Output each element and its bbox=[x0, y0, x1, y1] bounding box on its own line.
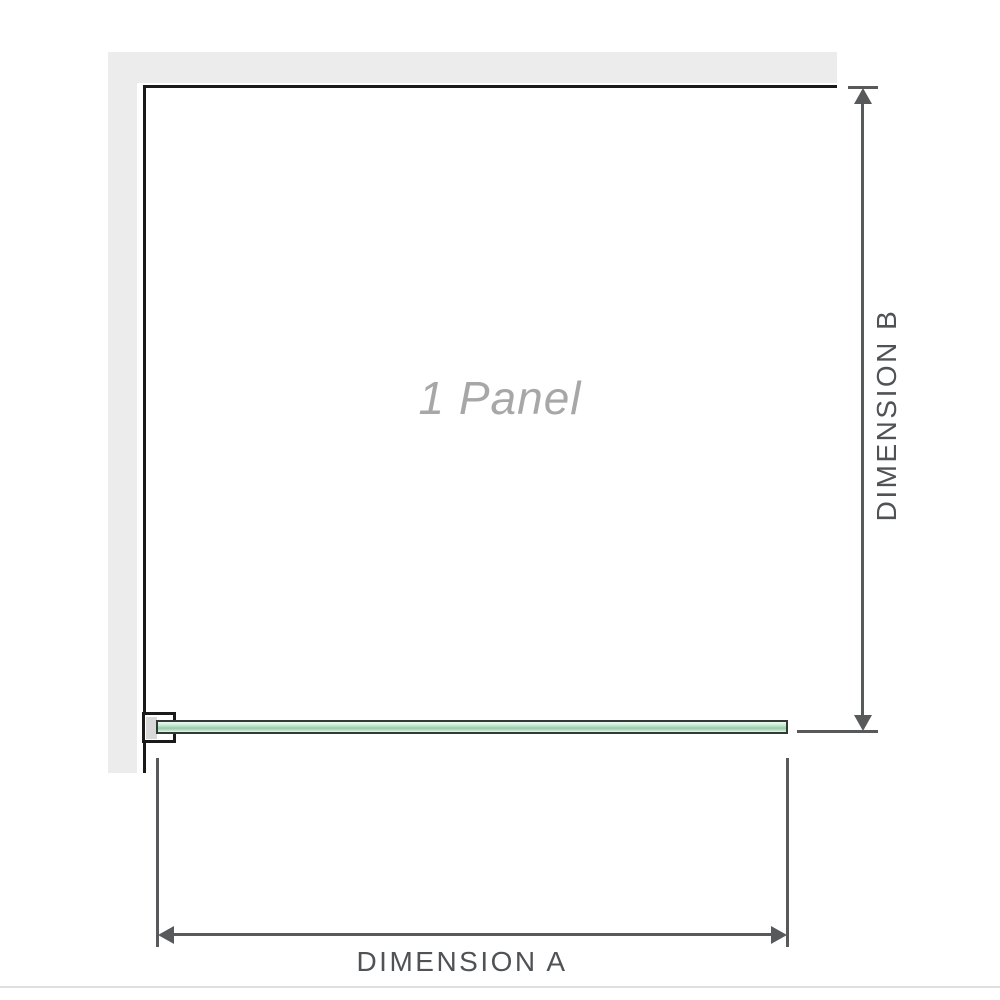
dimension-a-extension-left bbox=[156, 758, 159, 947]
dimension-b-label: DIMENSION B bbox=[871, 305, 901, 525]
dimension-a-label: DIMENSION A bbox=[312, 946, 612, 978]
arrow-left-icon bbox=[158, 926, 174, 944]
wall-left bbox=[108, 52, 137, 773]
dimension-a-line bbox=[168, 933, 775, 936]
glass-panel bbox=[156, 720, 788, 734]
diagram-canvas: 1 Panel DIMENSION B DIMENSION A bbox=[0, 0, 1000, 1000]
arrow-down-icon bbox=[854, 715, 872, 731]
arrow-right-icon bbox=[771, 926, 787, 944]
arrow-up-icon bbox=[854, 88, 872, 104]
bottom-divider bbox=[0, 986, 1000, 988]
panel-label: 1 Panel bbox=[350, 371, 650, 425]
panel-frame-left-edge bbox=[143, 85, 146, 773]
panel-frame-top-edge bbox=[143, 85, 837, 88]
dimension-a-extension-right bbox=[786, 758, 789, 947]
wall-top bbox=[108, 52, 837, 83]
dimension-b-line bbox=[861, 91, 864, 719]
